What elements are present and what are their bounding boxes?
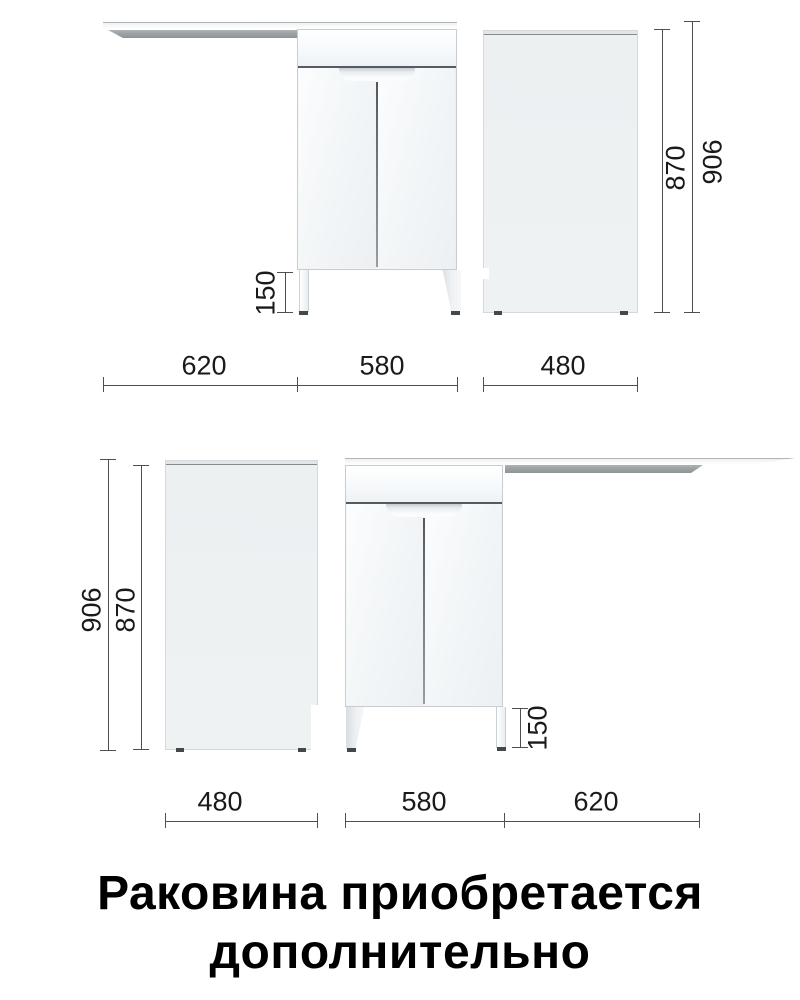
panel-top-edge bbox=[166, 461, 317, 465]
caption-line-2: дополнительно bbox=[0, 923, 800, 982]
dim-tick bbox=[165, 813, 166, 828]
caption-line-1: Раковина приобретается bbox=[0, 864, 800, 923]
panel-foot bbox=[176, 748, 184, 752]
drawer-front bbox=[298, 30, 456, 68]
countertop-bottom-underside bbox=[505, 465, 703, 473]
cabinet-leg-right bbox=[441, 270, 461, 312]
handle-recess bbox=[386, 504, 462, 517]
side-panel-top-view bbox=[483, 30, 638, 313]
vanity-cabinet-front-bottom-view bbox=[345, 465, 503, 707]
panel-leg-notch bbox=[482, 268, 489, 279]
dim-label-depth-bottom: 480 bbox=[197, 787, 242, 818]
dim-label-countertop-width-top: 620 bbox=[181, 351, 226, 382]
dim-tick bbox=[297, 377, 298, 392]
drawer-front bbox=[346, 466, 502, 504]
right-door bbox=[377, 68, 455, 268]
dim-label-countertop-width-bottom: 620 bbox=[573, 787, 618, 818]
dim-tick bbox=[100, 750, 116, 751]
panel-foot bbox=[620, 311, 628, 315]
panel-leg-notch bbox=[311, 705, 319, 751]
door-gap-line bbox=[423, 518, 425, 704]
dim-tick bbox=[457, 377, 458, 392]
dim-label-total-height-top: 906 bbox=[698, 139, 729, 184]
dim-label-leg-height-top: 150 bbox=[251, 270, 282, 315]
cabinet-leg-left bbox=[299, 270, 309, 312]
dim-label-cabinet-width-bottom: 580 bbox=[401, 787, 446, 818]
leg-foot bbox=[497, 747, 506, 751]
dim-tick bbox=[684, 312, 700, 313]
dim-tick bbox=[684, 21, 700, 22]
leg-foot bbox=[451, 311, 460, 315]
dim-label-cabinet-width-top: 580 bbox=[359, 351, 404, 382]
dim-line-depth-bottom bbox=[165, 821, 318, 822]
dim-line-leg-height-top bbox=[285, 273, 286, 313]
dim-tick bbox=[637, 377, 638, 392]
dim-line-widths-bottom bbox=[345, 821, 700, 822]
panel-top-edge bbox=[484, 31, 637, 35]
leg-foot bbox=[347, 748, 356, 752]
dim-tick bbox=[699, 813, 700, 828]
dim-tick bbox=[504, 813, 505, 828]
vanity-cabinet-front-top-view bbox=[297, 29, 457, 270]
caption: Раковина приобретается дополнительно bbox=[0, 864, 800, 982]
dim-label-leg-height-bottom: 150 bbox=[523, 705, 554, 750]
dim-tick bbox=[654, 312, 670, 313]
dim-label-cabinet-height-top: 870 bbox=[661, 145, 692, 190]
panel-foot bbox=[494, 311, 502, 315]
cabinet-leg-right bbox=[496, 707, 506, 748]
left-door bbox=[299, 68, 377, 268]
dim-label-depth-top: 480 bbox=[540, 351, 585, 382]
dim-tick bbox=[133, 749, 149, 750]
dim-line-depth-top bbox=[483, 385, 638, 386]
side-panel-bottom-view bbox=[165, 460, 318, 750]
countertop-top-underside bbox=[103, 30, 298, 38]
right-door bbox=[424, 504, 501, 705]
dim-tick bbox=[133, 465, 149, 466]
door-gap-line bbox=[376, 82, 378, 267]
dim-line-leg-height-bottom bbox=[520, 709, 521, 748]
dim-tick bbox=[345, 813, 346, 828]
cabinet-leg-left bbox=[346, 707, 366, 749]
handle-recess bbox=[339, 68, 415, 81]
dim-line-total-height-top bbox=[692, 22, 693, 313]
dim-line-widths-top bbox=[103, 385, 458, 386]
dim-tick bbox=[317, 813, 318, 828]
leg-foot bbox=[299, 311, 308, 315]
dim-label-cabinet-height-bottom: 870 bbox=[111, 587, 142, 632]
left-door bbox=[347, 504, 424, 705]
dim-tick bbox=[483, 377, 484, 392]
dim-label-total-height-bottom: 906 bbox=[77, 587, 108, 632]
product-dimension-diagram: 150 870 906 620 580 480 906 870 bbox=[0, 0, 800, 1000]
dim-line-total-height-bottom bbox=[108, 460, 109, 751]
panel-foot bbox=[298, 748, 306, 752]
dim-tick bbox=[103, 377, 104, 392]
dim-tick bbox=[100, 459, 116, 460]
dim-tick bbox=[654, 29, 670, 30]
